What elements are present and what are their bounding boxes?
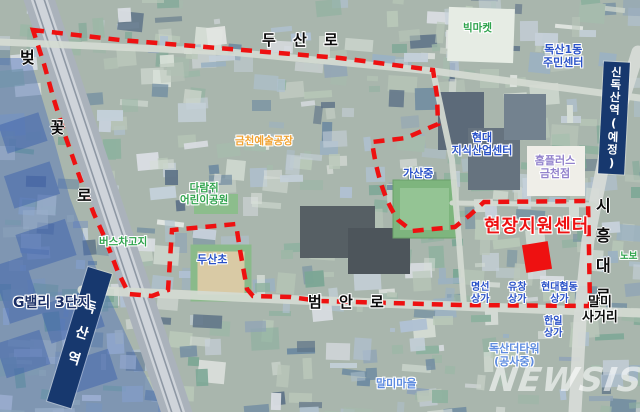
malmi-line2: 사거리 (582, 311, 618, 326)
hyundai-kc-line2: 지식산업센터 (450, 145, 514, 158)
road-label-beotkkotro-char: 벚 (20, 44, 35, 68)
siheungdaero-char: 흥 (596, 222, 611, 246)
newsis-watermark: NEWSIS (487, 360, 640, 399)
label-site-support-center: 현장지원센터 (484, 217, 589, 238)
hyundai-kc-line1: 현대 (450, 132, 514, 145)
malmi-line1: 말미 (588, 296, 618, 311)
doksan1dong-line1: 독산1동 (543, 44, 583, 57)
hanil-line1: 한일 (544, 316, 562, 328)
siheungdaero-char: 시 (596, 192, 611, 216)
label-homeplus: 홈플러스 금천점 (531, 155, 579, 180)
label-doksan1dong-center: 독산1동 주민센터 (543, 44, 583, 69)
satellite-map: 두 산 로 벚 꽃 로 범 안 로 시 흥 대 로 말미 사거리 독산역 신독산… (0, 0, 640, 412)
doksan-tower-line1: 독산더타워 (489, 343, 540, 356)
label-hyundai-knowledge-center: 현대 지식산업센터 (450, 132, 514, 157)
squirrel-park-line2: 어린이공원 (180, 194, 228, 206)
homeplus-line2: 금천점 (531, 168, 579, 181)
label-gvalley: G밸리 3단지 (13, 295, 91, 311)
label-yuchang-sangga: 유창 상가 (508, 282, 526, 305)
homeplus-line1: 홈플러스 (531, 155, 579, 168)
squirrel-park-line1: 다람쥐 (180, 182, 228, 194)
road-label-siheungdaero: 시 흥 대 로 (596, 192, 611, 306)
road-label-beotkkotro-char: 꽃 (50, 114, 65, 138)
road-label-beomanro: 범 안 로 (308, 294, 390, 311)
hyundai-coop-line2: 상가 (541, 294, 578, 306)
label-malmi-village: 말미마을 (376, 378, 416, 391)
label-myeongseon-sangga: 명선 상가 (471, 282, 489, 305)
myeongseon-line2: 상가 (471, 294, 489, 306)
label-hanil-sangga: 한일 상가 (544, 316, 562, 339)
label-gasan-middle-school: 가산중 (403, 168, 433, 181)
label-dusan-elementary: 두산초 (197, 254, 227, 267)
label-nobo-clipped: 노보 (620, 252, 637, 263)
label-bus-depot: 버스차고지 (99, 236, 147, 248)
yuchang-line1: 유창 (508, 282, 526, 294)
label-bigmarket: 빅마켓 (463, 22, 492, 34)
doksan1dong-line2: 주민센터 (543, 57, 583, 70)
label-squirrel-childrens-park: 다람쥐 어린이공원 (180, 182, 228, 206)
road-label-beotkkotro-char: 로 (77, 182, 92, 206)
siheungdaero-char: 대 (596, 252, 611, 276)
yuchang-line2: 상가 (508, 294, 526, 306)
junction-label-malmi: 말미 사거리 (588, 296, 618, 326)
label-geumcheon-art-factory: 금천예술공장 (235, 135, 293, 147)
label-hyundai-coop-sangga: 현대협동 상가 (541, 282, 578, 305)
hanil-line2: 상가 (544, 328, 562, 340)
road-label-dusanro: 두 산 로 (262, 32, 344, 49)
site-center-marker (522, 241, 552, 273)
hyundai-coop-line1: 현대협동 (541, 282, 578, 294)
redevelopment-boundary (33, 30, 590, 306)
myeongseon-line1: 명선 (471, 282, 489, 294)
